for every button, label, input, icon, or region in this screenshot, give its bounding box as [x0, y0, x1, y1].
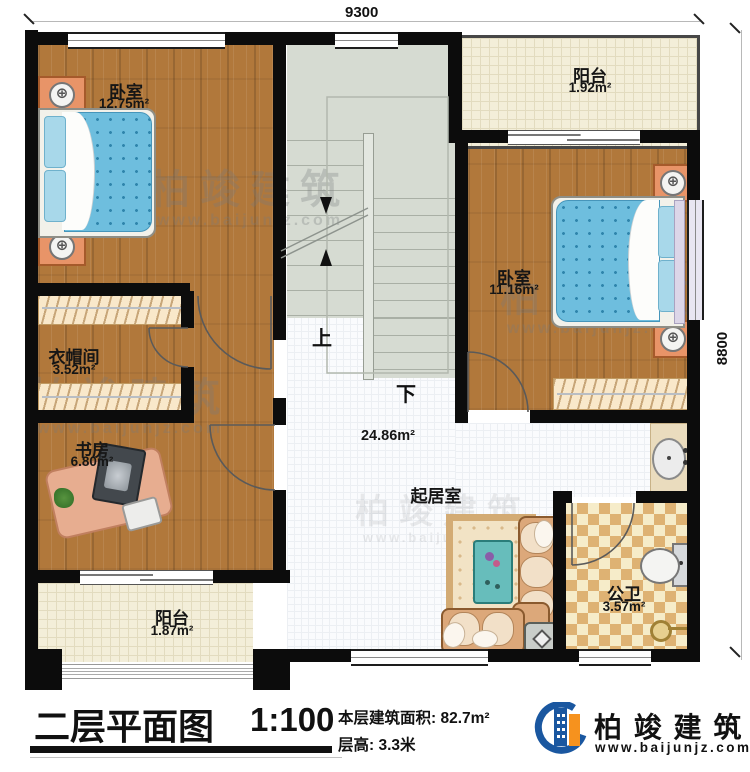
- dimension-tick: [729, 22, 740, 33]
- logo-tower-blue: [554, 708, 567, 746]
- wall: [273, 398, 286, 425]
- drawing-title: 二层平面图: [34, 698, 214, 750]
- dimension-tick: [693, 13, 704, 24]
- plant: [54, 488, 74, 508]
- stair-steps-right: [367, 318, 455, 376]
- wall: [448, 32, 462, 143]
- wardrobe-rail: [42, 307, 184, 309]
- lamp-icon: ⊕: [660, 170, 686, 196]
- wall: [553, 491, 572, 503]
- balcony-railing: [38, 664, 255, 679]
- window: [351, 649, 488, 666]
- stairs-down-label: 下: [396, 378, 416, 407]
- wall-pier: [25, 649, 62, 690]
- end-table-detail: [532, 629, 552, 649]
- table-dot: [485, 580, 490, 585]
- table-flowers: [485, 552, 494, 561]
- title-underline: [30, 746, 332, 753]
- title-underline-thin: [30, 757, 342, 758]
- floor-height-text: 层高: 3.3米: [338, 733, 416, 755]
- balcony-bottom-floor: [38, 583, 253, 662]
- sofa-pillow: [534, 520, 554, 548]
- wardrobe: [38, 291, 188, 325]
- logo-tower-orange: [569, 714, 580, 746]
- room-label-living: 起居室: [411, 482, 462, 507]
- dimension-width: 9300: [345, 4, 378, 21]
- sink-drain: [667, 456, 671, 460]
- dimension-tick: [23, 13, 34, 24]
- room-area-cloakroom: 3.52m²: [53, 362, 96, 377]
- wall: [25, 570, 80, 583]
- wall: [553, 497, 566, 662]
- lamp-icon: ⊕: [49, 82, 75, 108]
- wall: [25, 32, 68, 45]
- wall: [181, 291, 194, 328]
- sofa-pillow: [472, 630, 498, 648]
- dimension-height: 8800: [714, 332, 731, 365]
- wall: [273, 490, 286, 570]
- wall: [213, 570, 290, 583]
- floor-area-text: 本层建筑面积: 82.7m²: [338, 706, 490, 728]
- stair-steps-right: [367, 198, 455, 318]
- coffee-table: [473, 540, 513, 604]
- window: [68, 32, 225, 49]
- wall: [273, 45, 286, 340]
- window: [335, 32, 398, 49]
- room-area-study: 6.80m²: [71, 454, 114, 469]
- wall-pier: [253, 649, 290, 690]
- room-area-balcony-bottom: 1.87m²: [151, 623, 194, 638]
- room-area-bedroom-right: 11.16m²: [489, 282, 539, 297]
- bed-sheet: [628, 200, 659, 320]
- wall: [636, 491, 700, 503]
- dimension-line-right: [741, 30, 742, 660]
- wardrobe-rail: [42, 396, 184, 398]
- wardrobe: [553, 378, 689, 410]
- floor-plan: 9300 8800 柏竣建筑 www.baijunjz.com 柏竣建筑 www…: [0, 0, 750, 772]
- stair-steps-left: [287, 140, 367, 318]
- sink: [652, 438, 686, 480]
- room-area-bathroom: 3.57m²: [603, 599, 646, 614]
- wall: [651, 649, 700, 662]
- table-dot: [495, 584, 500, 589]
- brand-website: www.baijunjz.com: [595, 740, 750, 755]
- wall: [290, 649, 351, 662]
- wall: [530, 410, 700, 423]
- table-flowers: [493, 560, 500, 567]
- wardrobe-rail: [557, 393, 686, 395]
- toilet-bowl: [640, 548, 680, 584]
- pillow: [44, 170, 66, 222]
- stair-railing: [363, 133, 374, 380]
- drawing-scale: 1:100: [250, 701, 334, 739]
- sliding-door: [80, 570, 213, 585]
- brand-logo-icon: [534, 702, 588, 760]
- dimension-line-top: [30, 21, 700, 22]
- wardrobe: [38, 383, 188, 412]
- wall: [455, 130, 468, 423]
- sofa-cushion: [520, 556, 554, 588]
- window: [687, 200, 704, 320]
- dimension-tick: [729, 646, 740, 657]
- pillow: [44, 116, 66, 168]
- shower-head: [650, 620, 672, 642]
- vanity-floor: [553, 423, 650, 497]
- room-area-balcony-top: 1.92m²: [569, 80, 612, 95]
- room-area-bedroom-left: 12.75m²: [99, 96, 149, 111]
- wall: [25, 283, 190, 296]
- wall: [225, 32, 335, 45]
- wall: [25, 30, 38, 662]
- room-area-living: 24.86m²: [361, 428, 415, 444]
- sliding-door: [508, 130, 640, 145]
- lamp-icon: ⊕: [660, 326, 686, 352]
- wall: [25, 410, 194, 423]
- window: [579, 649, 651, 666]
- stairs-up-label: 上: [312, 322, 332, 351]
- headboard: [674, 200, 685, 324]
- wall: [462, 130, 508, 143]
